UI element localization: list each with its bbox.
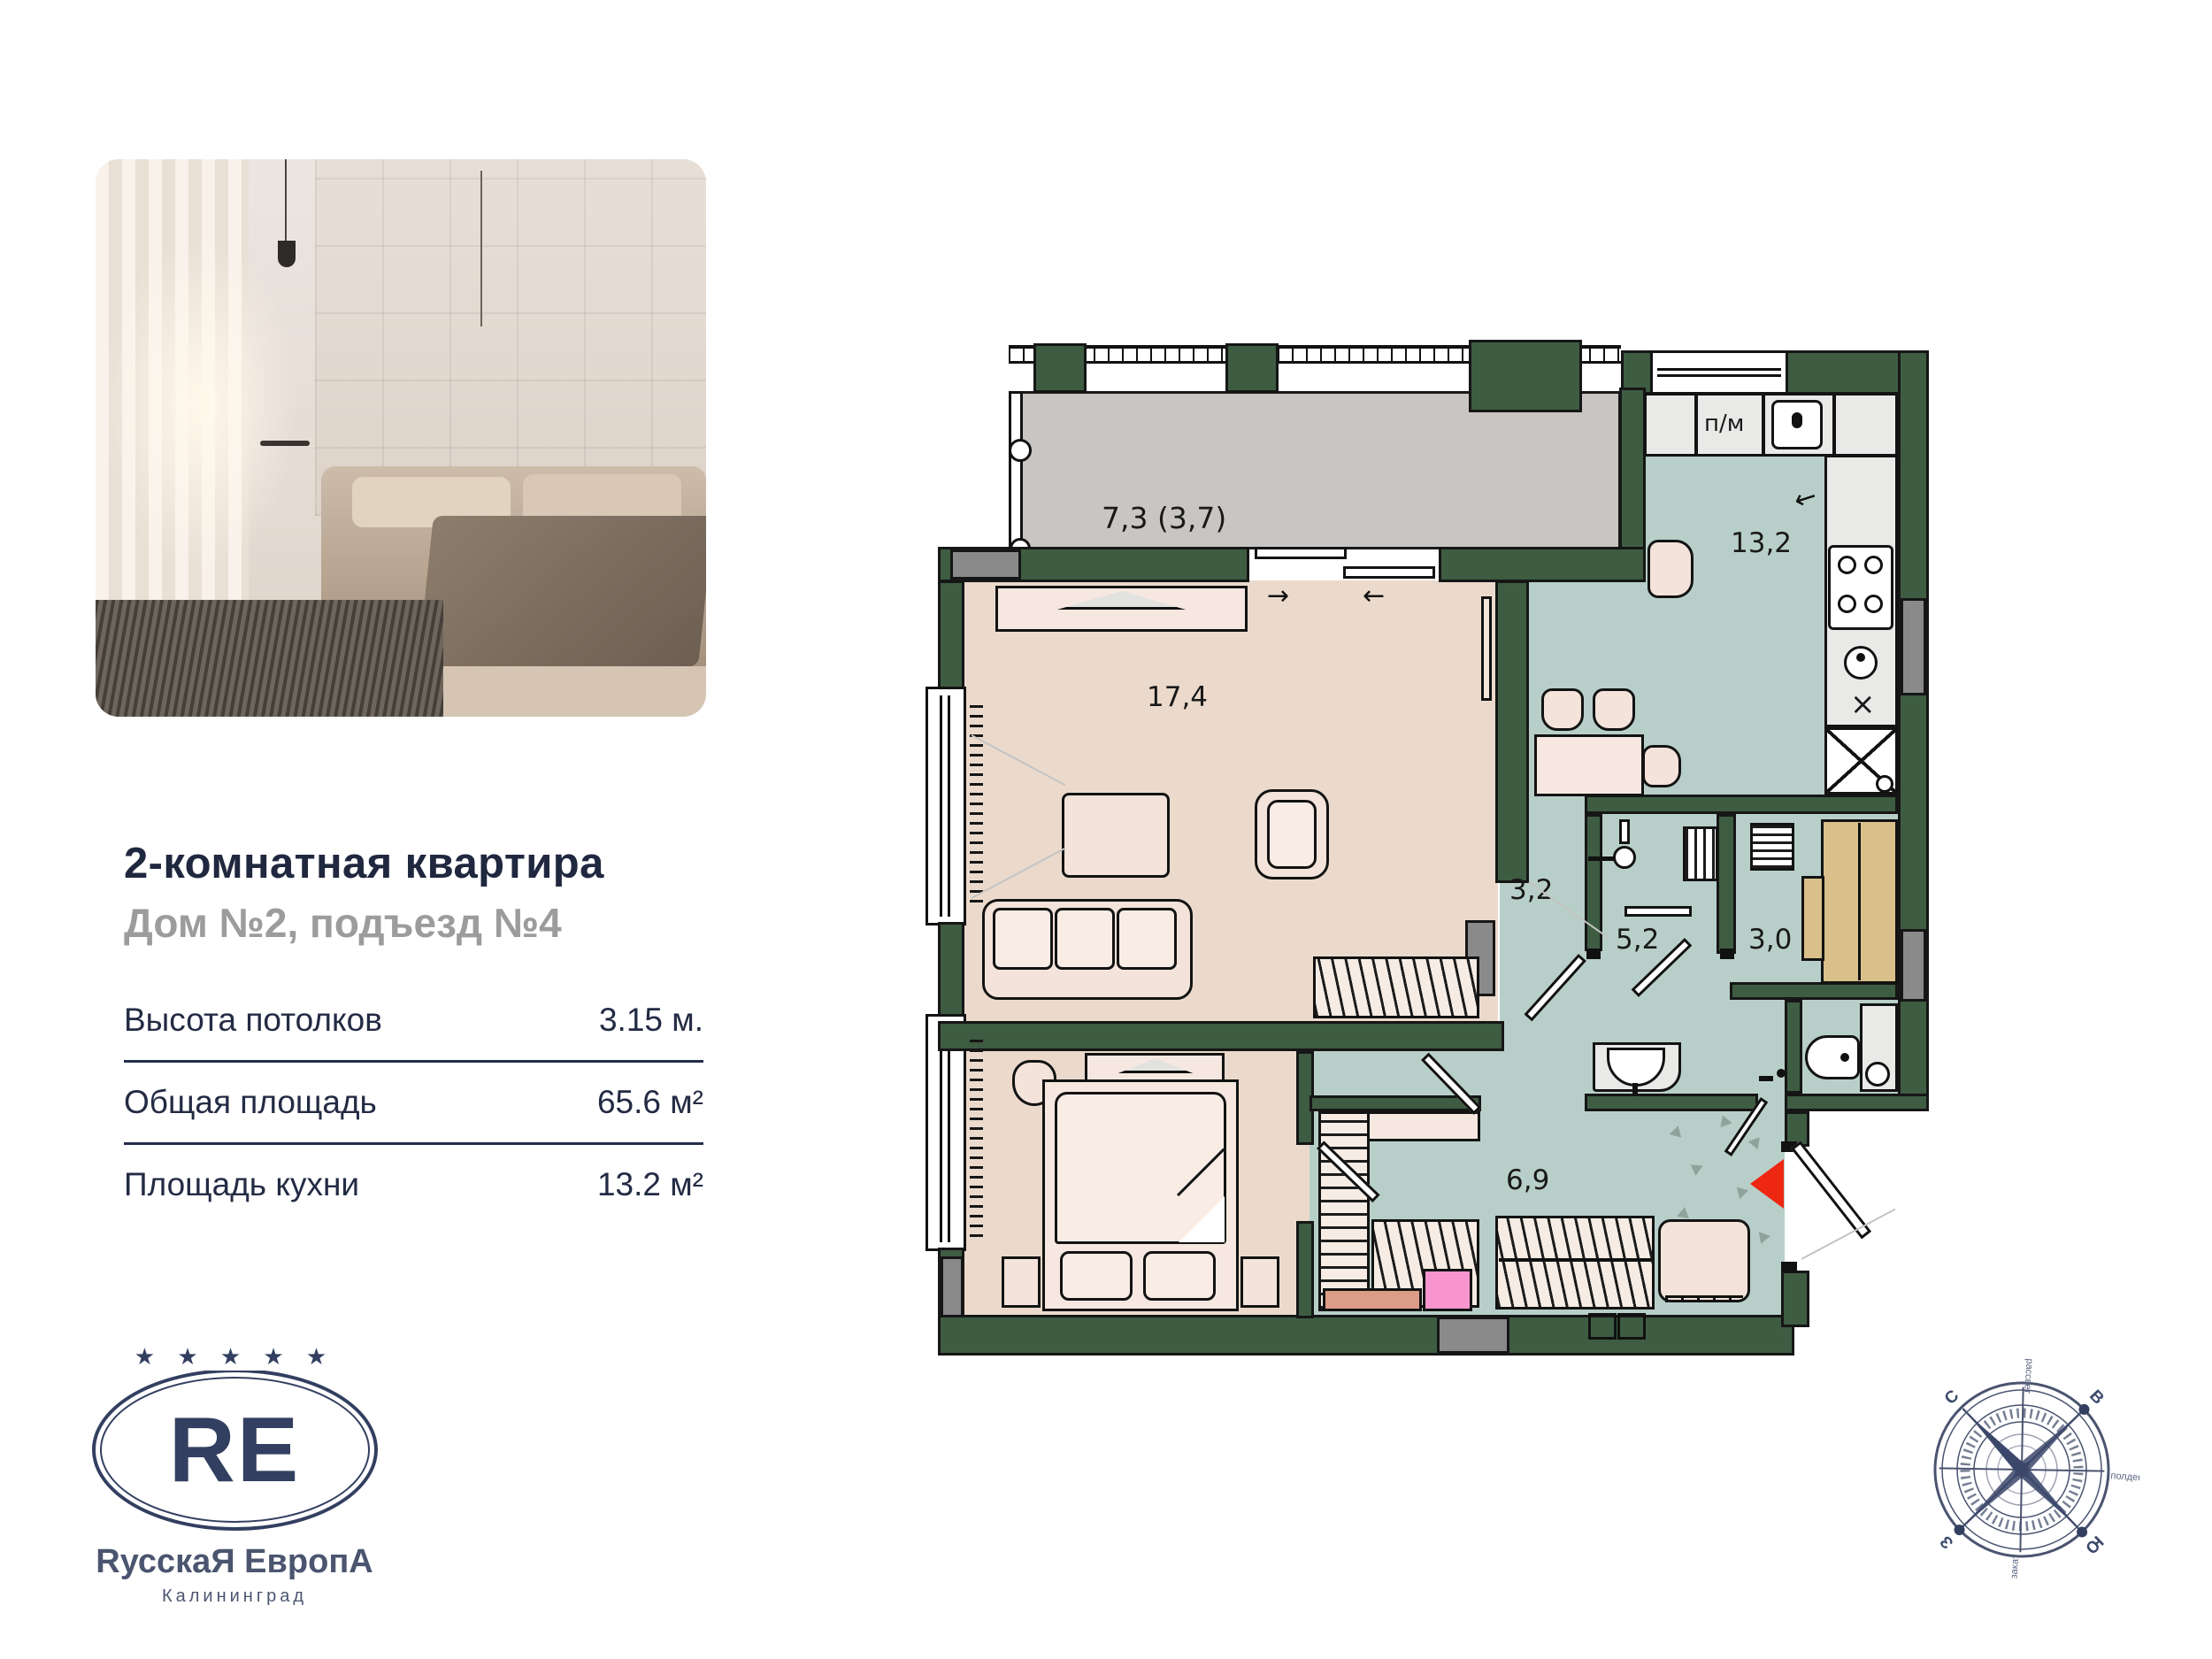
wc-basin-icon [1865,1062,1890,1087]
closet-top-wall [1310,1095,1481,1111]
cooktop-icon [1828,545,1893,630]
spec-label: Высота потолков [124,1002,382,1039]
vent-shaft [1901,929,1926,1002]
wall-deco-square [1617,1313,1646,1340]
door-post [1720,949,1734,959]
wc-faucet-icon [1759,1076,1773,1081]
balcony-pillar [1225,343,1279,393]
specs-table: Высота потолков 3.15 м. Общая площадь 65… [124,980,703,1225]
living-kitchen-divider [1495,580,1529,883]
nightstand [1002,1256,1041,1308]
radiator-icon [970,699,983,902]
spec-value: 65.6 м² [597,1084,703,1121]
vent-shaft [1437,1317,1509,1354]
living-window-glass [940,695,950,917]
oven-knob-icon [1844,646,1878,680]
developer-logo: ★ ★ ★ ★ ★ RE RусскаЯ ЕвропА Калининград [75,1343,394,1607]
door-post [1781,1262,1797,1272]
bath-bottom-wall [1585,1094,1758,1111]
balcony-kitchen-wall [1619,388,1646,549]
shelf-lines [1481,596,1492,701]
compass-noon-label: полдень [2110,1471,2139,1484]
spec-row-ceiling: Высота потолков 3.15 м. [124,980,703,1063]
shower-column [1619,819,1630,844]
bed-cushion [1060,1251,1133,1301]
sauna-vent-grille [1750,823,1794,871]
spec-value: 3.15 м. [599,1002,703,1039]
bath-shelf [1624,906,1692,917]
balcony-glazing [1009,391,1023,549]
shower-head-icon [1613,846,1636,869]
radiator-icon [970,1033,983,1237]
dining-chair [1541,688,1584,731]
wc-faucet-dot [1777,1069,1786,1078]
closet-mat [1323,1288,1422,1311]
floorplan: → ← 7,3 (3,7) 17,4 13,2 13,0 3,2 5,2 3,0… [920,334,1938,1370]
sauna-area-label: 3,0 [1748,924,1792,956]
entry-bench [1658,1219,1750,1302]
kitchen-counter [1833,393,1898,457]
sauna-bottom-wall [1730,982,1898,1000]
mat-mark [1677,1206,1691,1218]
wall-deco-square [1588,1313,1617,1340]
coffee-table [1062,793,1170,878]
sauna-bench-line [1858,823,1861,980]
compass-north-label: С [1941,1386,1963,1409]
wc-bottom-wall [1785,1094,1929,1111]
sofa-cushion [993,908,1053,970]
entry-door-leaf [1791,1141,1871,1239]
kitchen-chair [1647,540,1694,598]
photo-throw-blanket [418,516,706,666]
kitchen-area-label: 13,2 [1731,527,1792,559]
living-top-wall [1439,547,1646,582]
vent-shaft [1901,598,1926,695]
toilet-button [1840,1053,1849,1062]
logo-company-name: RусскаЯ ЕвропА [75,1543,394,1581]
towel-radiator-icon [1683,826,1718,881]
toilet-icon [1805,1035,1860,1079]
dining-chair [1642,745,1681,787]
hall-wardrobe-rack [1495,1216,1655,1310]
dishwasher-label: п/м [1704,411,1744,437]
entry-side-wall [1781,1271,1809,1327]
compass-rose: С В Ю З рассвет закат полдень [1904,1352,2139,1587]
counter-cross: × [1850,687,1876,722]
photo-rug [96,600,443,717]
bath-faucet-icon [1632,1083,1638,1095]
sauna-step [1801,876,1824,961]
logo-city: Калининград [75,1586,394,1607]
bedroom-closet-wall [1296,1221,1314,1318]
burner-icon [1864,595,1883,613]
spec-label: Общая площадь [124,1084,377,1121]
hallway-area-label: 6,9 [1506,1164,1549,1196]
wc-divider-wall [1785,1000,1802,1094]
entrance-marker [1750,1159,1784,1209]
balcony-corner-wall [1469,340,1582,412]
photo-wall-panels [315,159,706,516]
compass-sunset-label: закат [2008,1555,2021,1579]
balcony-pillar [1033,343,1087,393]
sofa-cushion [1117,908,1177,970]
burner-icon [1838,556,1856,574]
column-marker [1009,439,1032,462]
left-exterior-wall [938,580,964,690]
vent-shaft [950,549,1021,580]
sink-faucet-icon [1792,412,1802,428]
bench-feet [1665,1295,1743,1302]
bottom-exterior-wall [938,1315,1794,1356]
nightstand [1240,1256,1279,1308]
sofa-cushion [1055,908,1115,970]
spec-value: 13.2 м² [597,1166,703,1203]
fridge-hinge [1876,775,1893,793]
photo-window-glow [102,237,297,572]
pendant-lamp-cord [285,159,287,243]
slide-arrow-left: ← [1363,580,1385,611]
compass-west-label: З [1937,1532,1957,1552]
floor-lamp-pole [480,171,482,326]
living-area-label: 17,4 [1147,681,1208,713]
oven-knob-dot [1856,653,1865,662]
slide-arrow-right: → [1267,580,1289,611]
apartment-photo [96,159,706,717]
page-title: 2-комнатная квартира [124,839,604,888]
building-subtitle: Дом №2, подъезд №4 [124,899,562,947]
rack-rail [1499,1258,1651,1262]
closet-pink-box [1423,1269,1472,1311]
photo-side-table [260,441,310,446]
bath-sauna-divider [1717,814,1736,954]
spec-row-total-area: Общая площадь 65.6 м² [124,1063,703,1145]
pendant-lamp [278,241,296,267]
balcony-floor [1009,391,1621,549]
logo-stars-icon: ★ ★ ★ ★ ★ [122,1343,347,1371]
balcony-area-label: 7,3 (3,7) [1102,501,1226,535]
armchair-cushion [1267,800,1317,869]
sliding-door-panel [1343,566,1435,579]
spec-row-kitchen-area: Площадь кухни 13.2 м² [124,1145,703,1225]
logo-ellipse: RE [92,1369,378,1531]
sliding-door-panel [1255,547,1347,559]
dining-table [1534,734,1644,796]
door-post [1586,949,1601,959]
burner-icon [1864,556,1883,574]
duvet-fold [1179,1196,1225,1242]
compass-dawn-label: рассвет [2022,1358,2035,1394]
bed-cushion [1143,1251,1216,1301]
bedroom-window-glass [940,1023,950,1242]
left-exterior-wall [938,922,964,1018]
burner-icon [1838,595,1856,613]
living-bedroom-wall [938,1021,1504,1051]
bathroom-area-label: 5,2 [1616,924,1659,956]
mat-mark [1759,1230,1771,1244]
kitchen-counter [1644,393,1697,457]
compass-east-label: В [2085,1386,2108,1408]
kitchen-window-glass [1657,368,1781,377]
wardrobe-rack [1313,956,1479,1018]
closet-vertical-rack [1318,1111,1370,1311]
corridor-area-label: 3,2 [1509,874,1553,906]
logo-monogram: RE [169,1404,300,1496]
bath-top-wall [1585,795,1898,814]
dining-chair [1593,688,1635,731]
spec-label: Площадь кухни [124,1166,359,1203]
